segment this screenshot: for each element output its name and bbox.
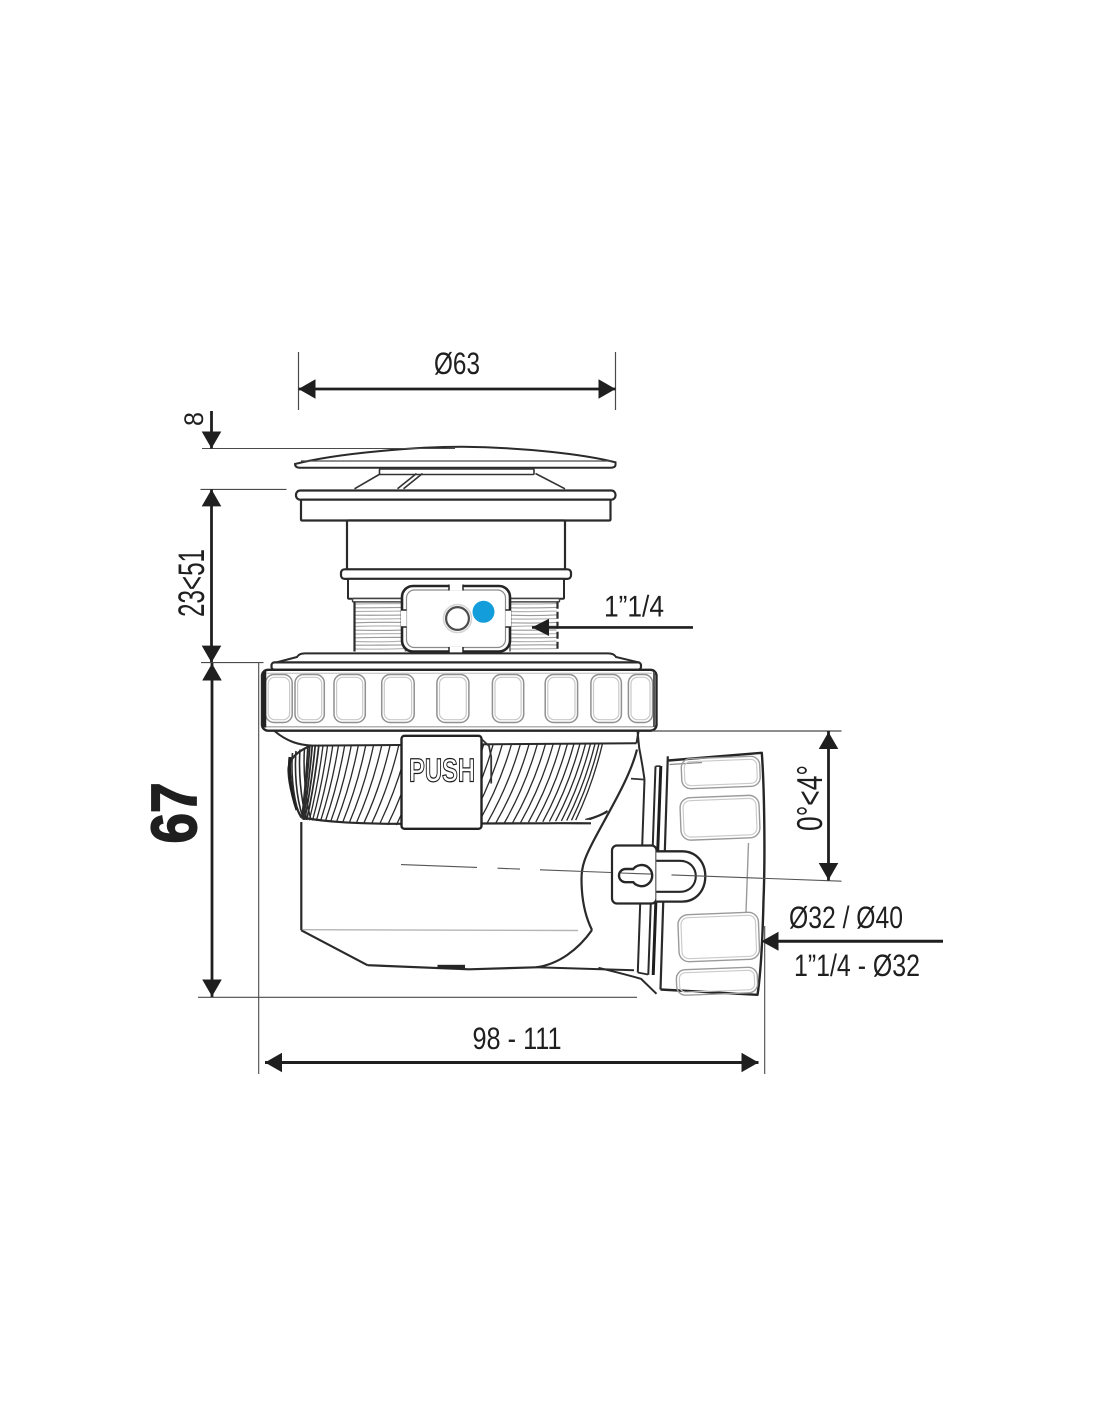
svg-text:67: 67 <box>138 783 210 844</box>
svg-text:Ø32 / Ø40: Ø32 / Ø40 <box>789 900 903 935</box>
svg-text:Ø63: Ø63 <box>434 346 480 381</box>
svg-text:8: 8 <box>179 412 209 426</box>
svg-text:98 - 111: 98 - 111 <box>473 1021 562 1056</box>
svg-text:1”1/4 - Ø32: 1”1/4 - Ø32 <box>794 948 920 983</box>
svg-text:23<51: 23<51 <box>171 549 212 617</box>
svg-text:PUSH: PUSH <box>409 752 475 789</box>
svg-text:1”1/4: 1”1/4 <box>604 591 664 624</box>
svg-text:0°<4°: 0°<4° <box>789 765 830 831</box>
